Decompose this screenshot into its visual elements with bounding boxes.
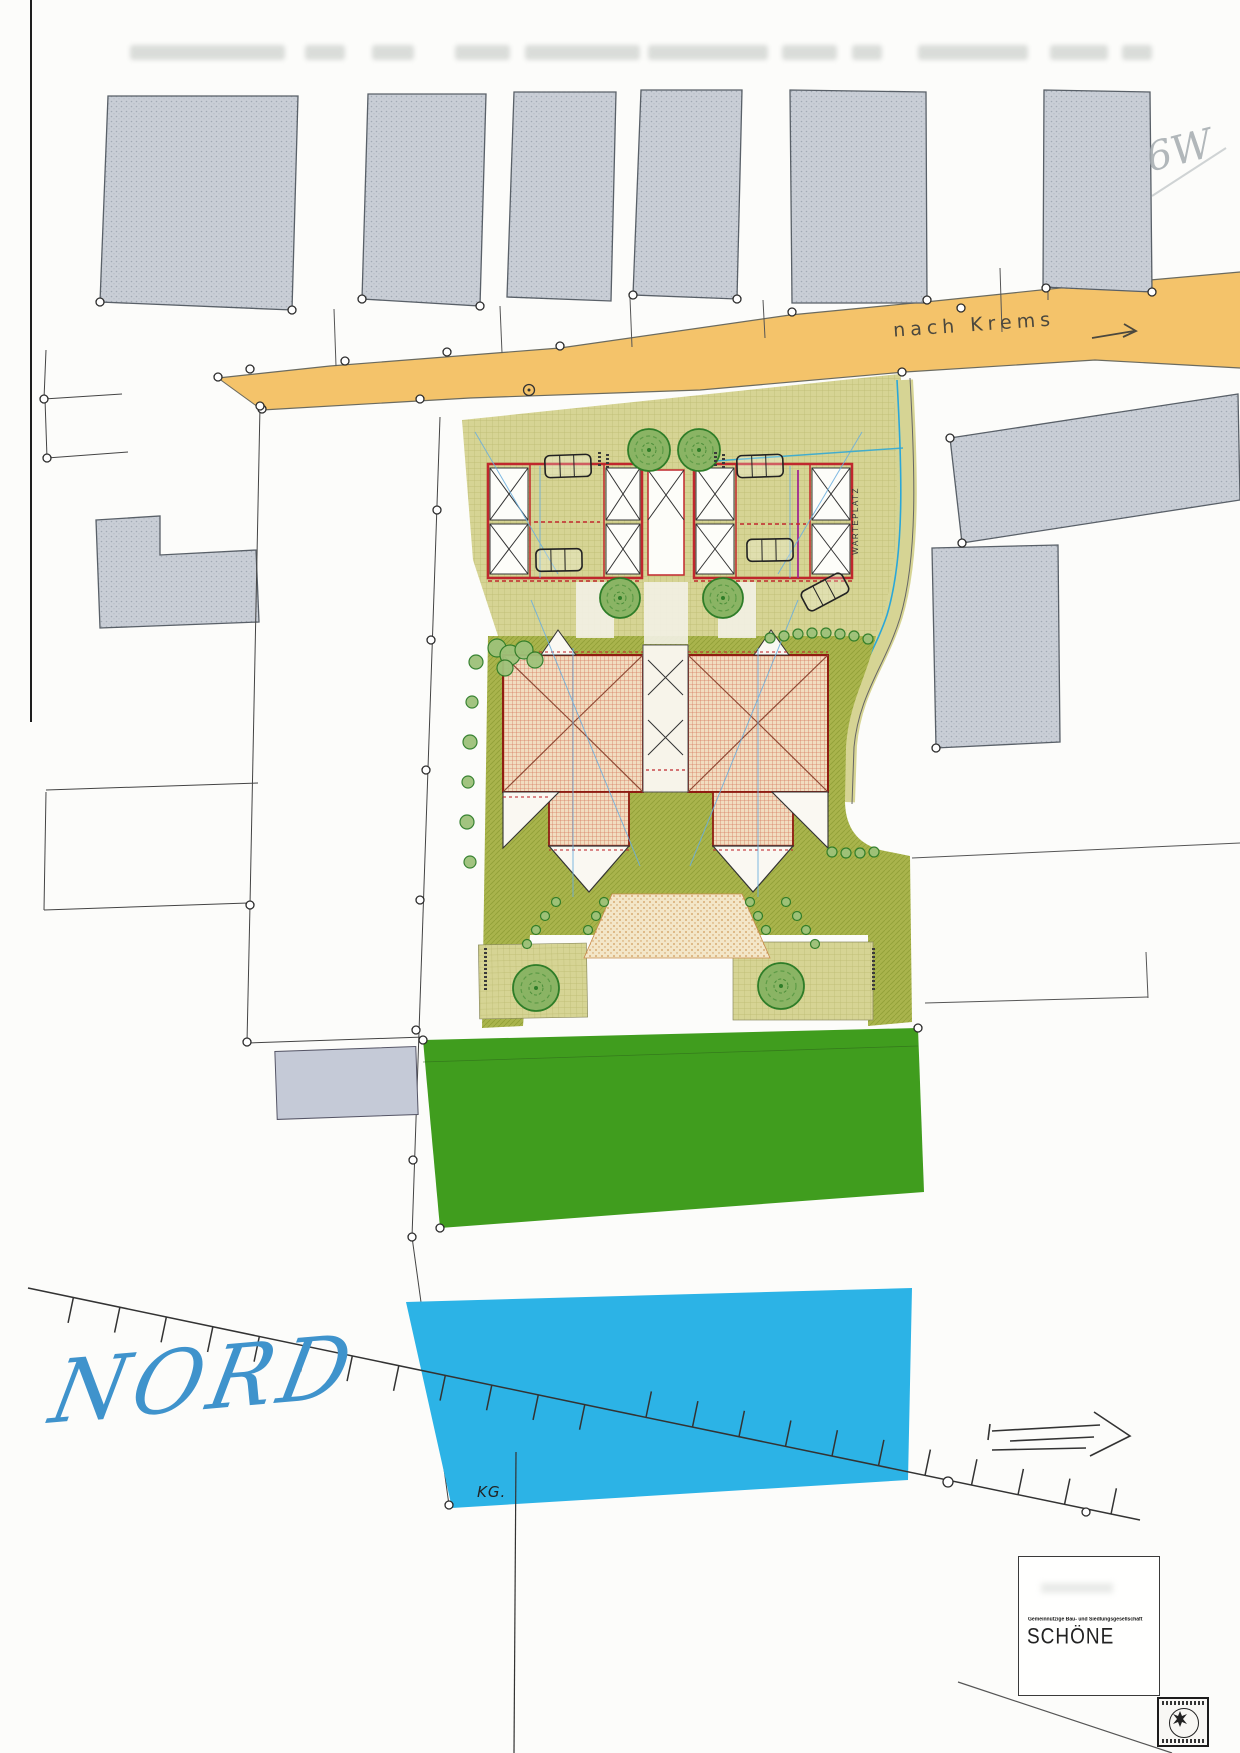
existing-structure-southwest — [275, 1047, 418, 1120]
existing-building-west — [96, 516, 259, 628]
illegible-label — [872, 948, 875, 990]
eagle-emblem-icon — [1169, 1708, 1199, 1738]
garage-connector — [648, 470, 684, 575]
stamp-top-text — [1162, 1701, 1204, 1705]
title-block-company-line: Gemeinnützige Bau- und Siedlungsgesellsc… — [1028, 1617, 1142, 1623]
waiting-area-label: WARTEPLATZ — [851, 487, 860, 555]
title-block: Gemeinnützige Bau- und Siedlungsgesellsc… — [1018, 1556, 1160, 1696]
stamp-bottom-text — [1162, 1739, 1204, 1743]
official-stamp — [1157, 1697, 1209, 1747]
title-block-company-name: SCHÖNE — [1027, 1625, 1114, 1650]
illegible-label — [722, 454, 725, 468]
lawn-field — [423, 1028, 924, 1228]
direction-arrow-icon — [988, 1412, 1130, 1456]
illegible-label — [484, 948, 487, 990]
site-plan-canvas — [0, 0, 1240, 1753]
existing-buildings-north — [100, 90, 1152, 310]
title-block-ghost-text — [1041, 1583, 1113, 1593]
illegible-label — [598, 452, 601, 468]
water-area — [406, 1288, 912, 1508]
illegible-label — [714, 452, 717, 468]
existing-buildings-east — [932, 394, 1240, 748]
site-plan-page: nach Krems NORD KG. WARTEPLATZ 6W Gemein… — [0, 0, 1240, 1753]
illegible-label — [606, 454, 609, 468]
cadastral-label: KG. — [477, 1483, 506, 1501]
